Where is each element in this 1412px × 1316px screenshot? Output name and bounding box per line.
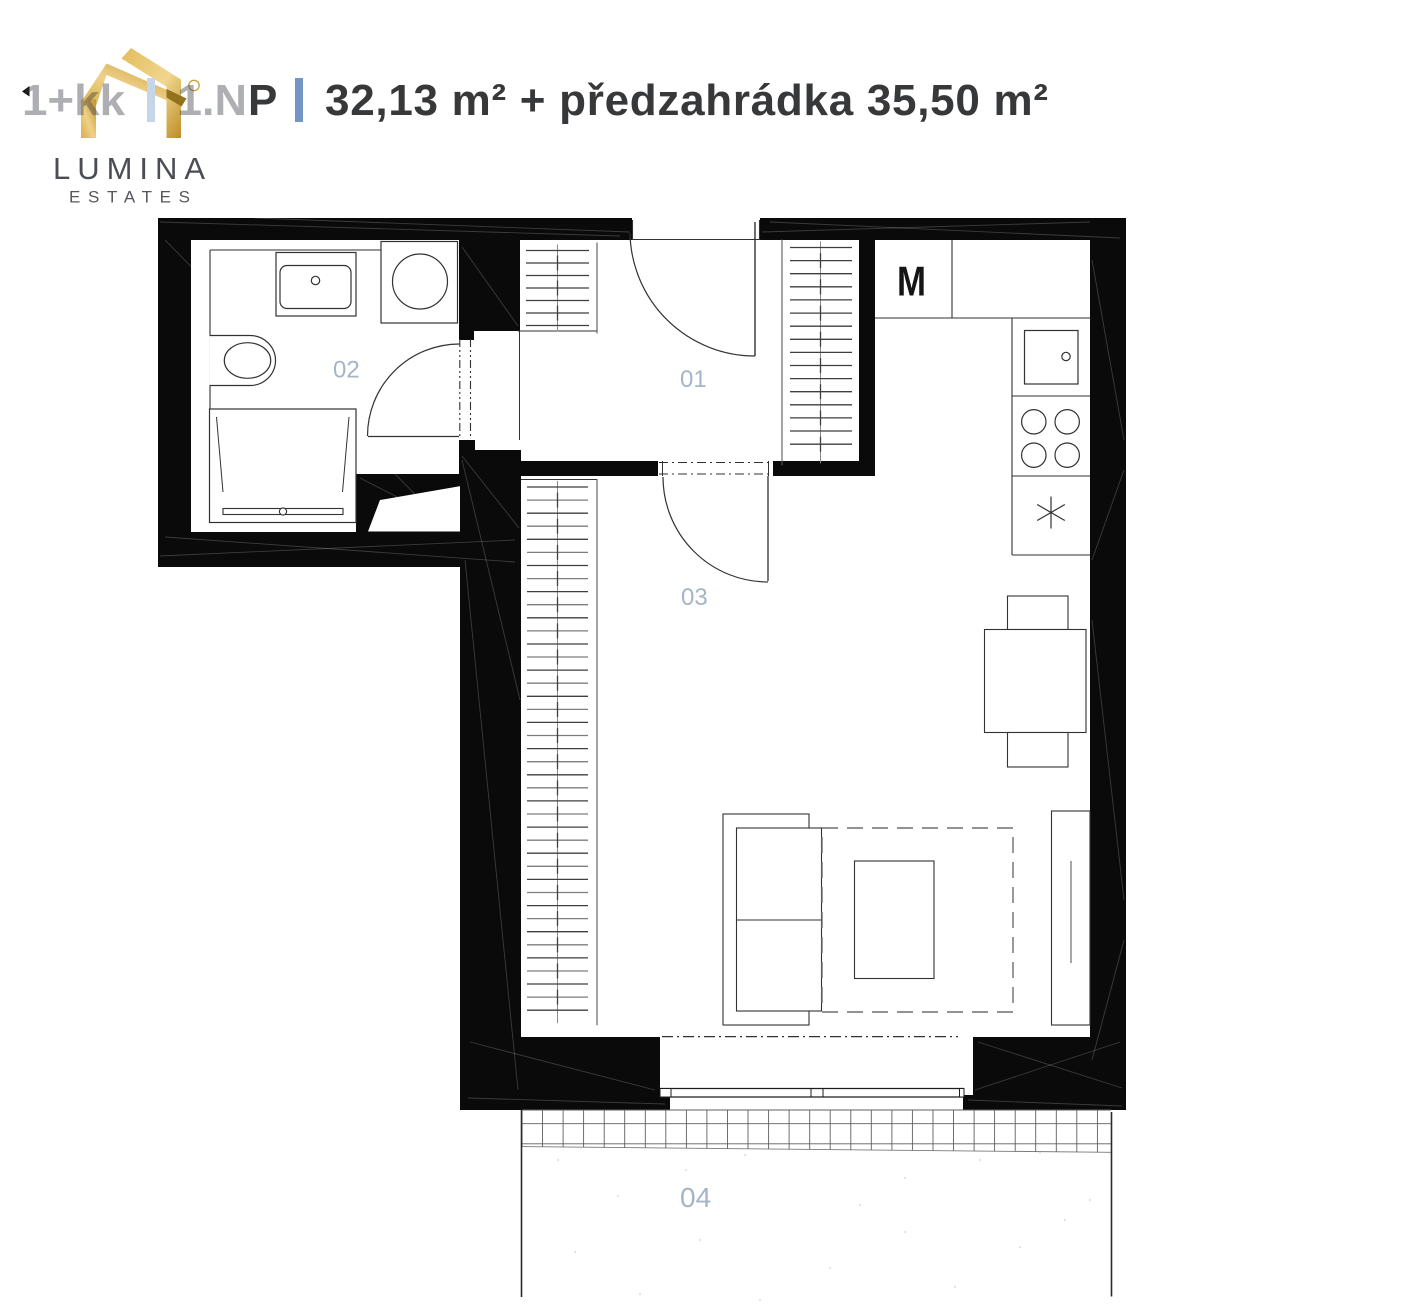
svg-text:1+kk: 1+kk xyxy=(22,76,126,125)
svg-text:P: P xyxy=(248,76,277,125)
svg-text:M: M xyxy=(897,258,926,305)
svg-text:04: 04 xyxy=(680,1182,711,1213)
svg-text:32,13 m² + předzahrádka 35,50: 32,13 m² + předzahrádka 35,50 m² xyxy=(325,76,1048,125)
svg-text:1.N: 1.N xyxy=(177,76,247,125)
svg-text:02: 02 xyxy=(333,357,360,384)
svg-text:03: 03 xyxy=(681,584,708,611)
svg-text:01: 01 xyxy=(680,366,707,393)
